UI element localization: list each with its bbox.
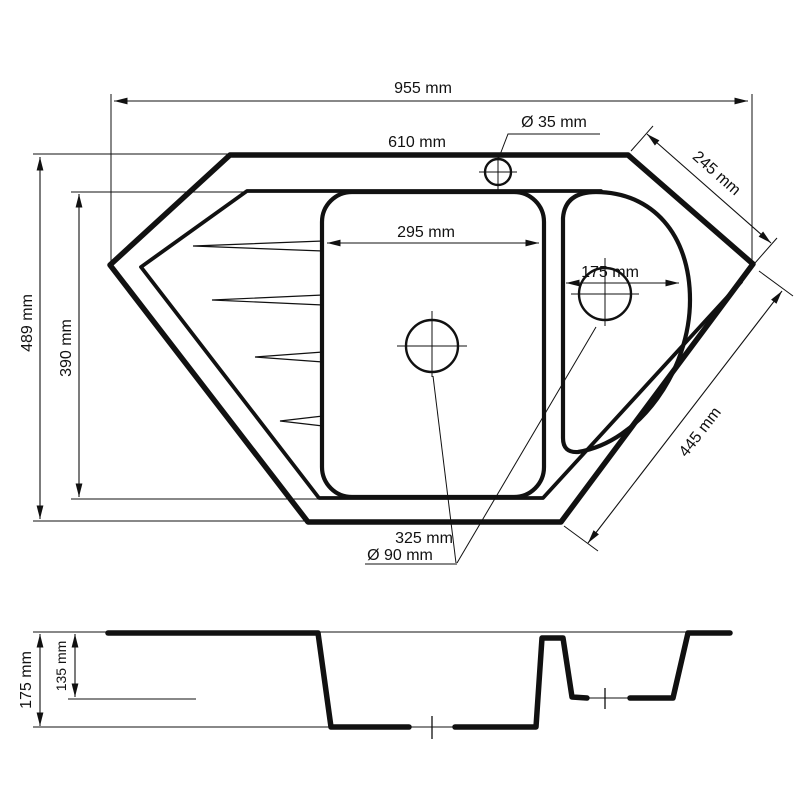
- small-drain-hole: [457, 258, 639, 563]
- drainer-groove: [193, 241, 323, 251]
- dimension-small-bowl-depth: 135 mm: [53, 634, 75, 697]
- dimension-small-bowl-width: 175 mm: [566, 264, 679, 283]
- dimension-right-upper-edge: 245 mm: [631, 126, 777, 263]
- drainer-groove: [212, 295, 323, 305]
- dim-label-main-bowl-width: 295 mm: [397, 224, 455, 241]
- extension-line: [631, 126, 653, 151]
- dim-label-right-lower-edge: 445 mm: [676, 404, 725, 460]
- dim-label-overall-height: 489 mm: [19, 294, 36, 352]
- faucet-hole: [479, 134, 600, 190]
- section-profile-divider-and-small-bowl: [455, 638, 587, 727]
- drainer-groove: [255, 352, 323, 362]
- sink-dimension-drawing: 955 mm 610 mm Ø 35 mm 489 mm 390 mm 295 …: [0, 0, 800, 800]
- extension-line: [759, 271, 793, 296]
- section-view: 175 mm 135 mm: [18, 632, 730, 739]
- top-view: 955 mm 610 mm Ø 35 mm 489 mm 390 mm 295 …: [19, 80, 793, 564]
- technical-drawing-canvas: 955 mm 610 mm Ø 35 mm 489 mm 390 mm 295 …: [0, 0, 800, 800]
- dim-label-small-bowl-depth: 135 mm: [53, 641, 69, 692]
- small-bowl-outline: [563, 192, 690, 452]
- dim-label-basin-height: 390 mm: [58, 319, 75, 377]
- small-drain-leader-line: [457, 327, 596, 563]
- dim-label-bottom-edge: 325 mm: [395, 530, 453, 547]
- dimension-right-lower-edge: 445 mm: [564, 271, 793, 551]
- main-drain-hole: [397, 311, 467, 563]
- dim-label-drain-diameter: Ø 90 mm: [367, 547, 433, 564]
- extension-line: [564, 526, 598, 551]
- drainer-groove: [280, 416, 323, 426]
- dim-label-faucet-diameter: Ø 35 mm: [521, 114, 587, 131]
- dim-label-top-edge: 610 mm: [388, 134, 446, 151]
- dim-label-overall-depth: 175 mm: [18, 651, 35, 709]
- dim-label-right-upper-edge: 245 mm: [689, 148, 744, 199]
- dim-label-small-bowl-width: 175 mm: [581, 264, 639, 281]
- section-profile-left-rim-and-main-bowl: [108, 633, 409, 727]
- dimension-main-bowl-width: 295 mm: [327, 224, 539, 243]
- dim-label-overall-width: 955 mm: [394, 80, 452, 97]
- extension-line: [755, 238, 777, 263]
- section-profile-right-rim: [630, 633, 730, 698]
- dimension-overall-depth: 175 mm: [18, 634, 40, 726]
